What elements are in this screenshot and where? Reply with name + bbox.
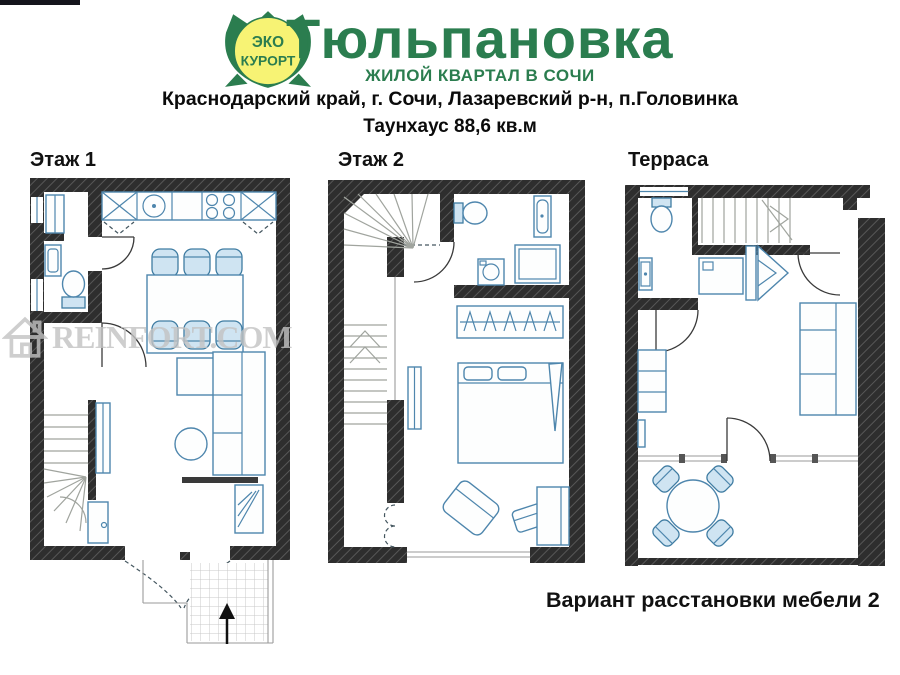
area-line: Таунхаус 88,6 кв.м (0, 116, 900, 138)
landing-door (798, 253, 840, 295)
plan-label-floor2: Этаж 2 (338, 149, 404, 172)
round-table (667, 480, 719, 532)
toilet-tank (454, 203, 463, 223)
pillow (498, 367, 526, 380)
terrace-table-set (650, 463, 735, 548)
bathroom (454, 196, 560, 285)
sofa (800, 303, 856, 415)
badge-line1: ЭКО (252, 34, 284, 51)
cabinet (638, 350, 666, 447)
scan-artifact-bar (0, 0, 80, 5)
brand-subtitle: ЖИЛОЙ КВАРТАЛ В СОЧИ (287, 66, 673, 86)
shower-cabin (699, 258, 743, 294)
watermark-text: REINFORT.COM (52, 319, 292, 356)
plan-label-terrace: Терраса (628, 149, 708, 172)
coffee-table (175, 428, 207, 460)
shower (515, 245, 560, 283)
wall-shelf (638, 420, 645, 447)
glass-wall (638, 418, 858, 463)
straight-stairs (344, 325, 387, 424)
stairs (702, 198, 792, 243)
house-icon (2, 314, 48, 360)
toilet-bowl (63, 271, 85, 297)
terrace-door-arc (727, 418, 770, 461)
bathroom-door-arc (656, 310, 698, 352)
kitchen-counter (102, 192, 276, 234)
bathroom (639, 198, 698, 352)
floorplan-floor1 (30, 175, 290, 645)
top-window (640, 187, 688, 196)
floorplan-floor2 (328, 175, 585, 570)
armchair (440, 478, 501, 537)
double-bed (458, 363, 563, 463)
entry-porch (143, 560, 273, 644)
furniture-variant-caption: Вариант расстановки мебели 2 (546, 588, 880, 613)
hall-closet (46, 195, 64, 233)
washing-machine (478, 259, 504, 285)
bathroom-door-arc (414, 242, 454, 282)
flyer-page: ЭКО КУРОРТ Тюльпановка ЖИЛОЙ КВАРТАЛ В С… (0, 0, 900, 675)
toilet-tank (62, 297, 85, 308)
winder-stairs (344, 194, 428, 248)
winder-stairs (44, 415, 88, 531)
tv-unit (235, 485, 263, 533)
pillow (464, 367, 492, 380)
half-wall (182, 477, 258, 483)
watermark: REINFORT.COM (2, 314, 292, 360)
address-line: Краснодарский край, г. Сочи, Лазаревский… (0, 88, 900, 111)
desk (537, 487, 569, 545)
understairs-closet (88, 502, 108, 543)
brand-title: Тюльпановка (286, 10, 674, 68)
tv-dresser (96, 403, 110, 473)
bifold-door (385, 505, 396, 547)
toilet-bowl (463, 202, 487, 224)
plan-label-floor1: Этаж 1 (30, 149, 96, 172)
wardrobe-hangers (457, 306, 563, 338)
floorplan-terrace (622, 178, 888, 568)
bathroom (45, 245, 85, 308)
dresser (408, 367, 421, 429)
bottom-window (407, 552, 530, 557)
toilet-bowl (651, 206, 672, 232)
